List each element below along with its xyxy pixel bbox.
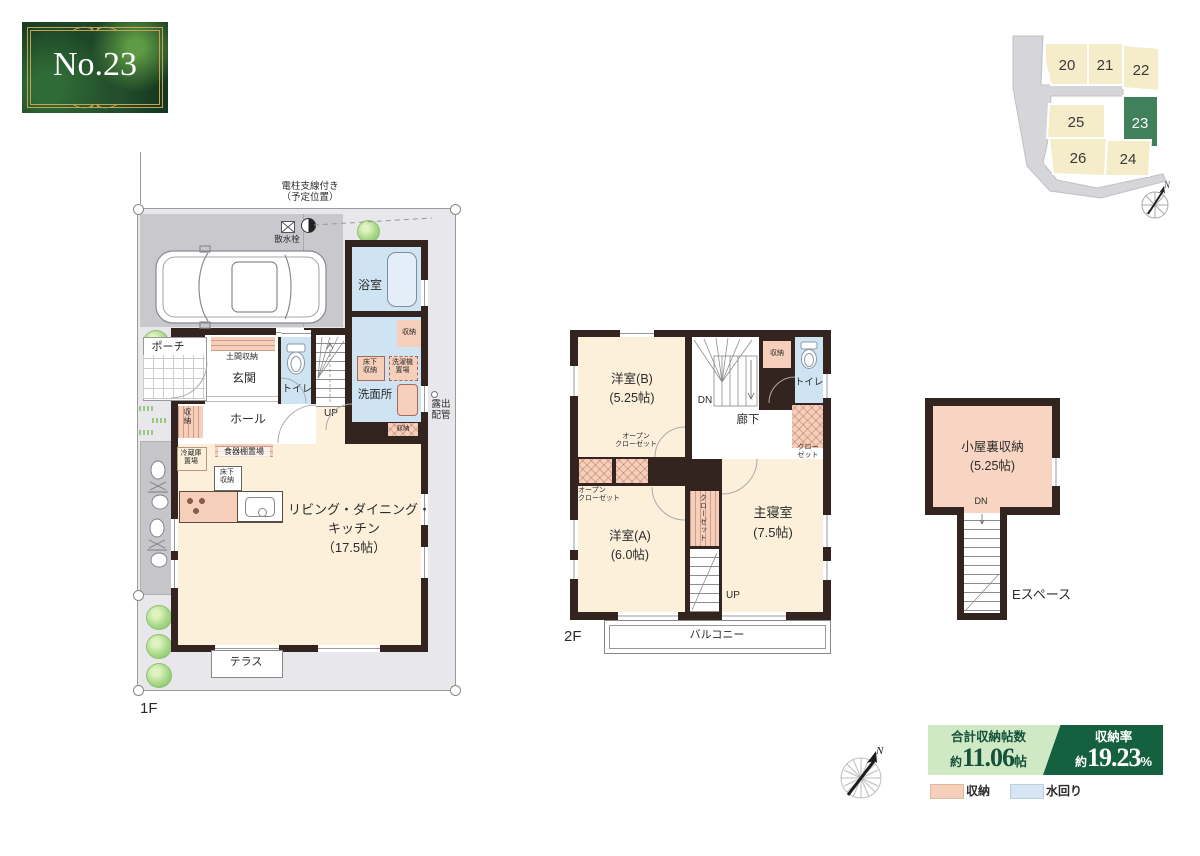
legend: 収納 水回り	[930, 784, 1180, 800]
legend-storage-label: 収納	[966, 784, 1000, 798]
storage-stats-banner: 合計収納帖数 約11.06帖 収納率 約19.23%	[928, 725, 1163, 775]
main-compass-icon: N	[834, 742, 894, 808]
legend-water-swatch	[1010, 784, 1044, 799]
f1-washroom-door-arc	[326, 404, 352, 430]
f2-room-a-door-arc	[652, 487, 685, 520]
garden-furniture-icon	[147, 461, 168, 567]
f1-toilet-door-arc	[281, 378, 306, 403]
stats-rate-value: 約19.23%	[1071, 743, 1156, 773]
f2-room-b-door-arc	[655, 427, 685, 457]
floorplan-sheet: No.23 20 21 22 23 25 26 24 N	[0, 0, 1200, 856]
legend-storage-swatch	[930, 784, 964, 799]
stats-total-value: 約11.06帖	[936, 743, 1041, 773]
main-compass-n: N	[875, 745, 884, 757]
f2-master-door-arc	[722, 459, 757, 494]
f1-porch-door-arc	[171, 362, 207, 398]
legend-water-label: 水回り	[1046, 784, 1092, 798]
f1-hall-door-arc	[278, 405, 316, 443]
f2-toilet-door-arc	[769, 377, 795, 403]
car-icon	[156, 246, 326, 328]
